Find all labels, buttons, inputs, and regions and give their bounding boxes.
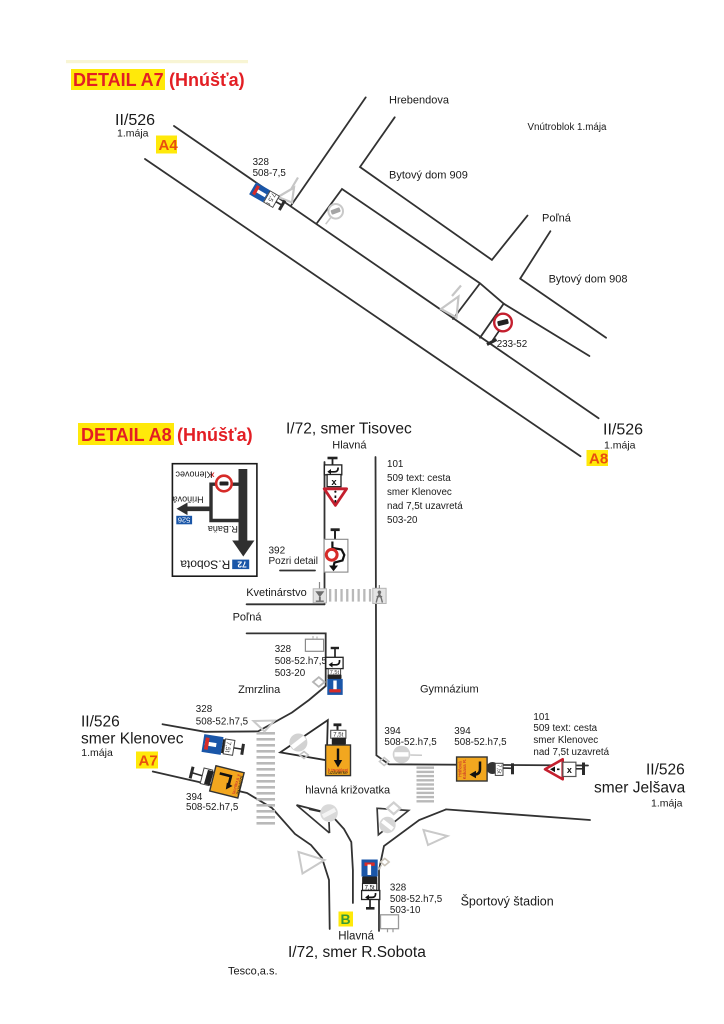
svg-text:Športový štadion: Športový štadion (461, 894, 554, 909)
svg-text:A8: A8 (589, 451, 608, 468)
svg-text:Poľná: Poľná (542, 213, 572, 225)
svg-text:Hriňová: Hriňová (173, 495, 204, 505)
svg-text:smer Klenovec: smer Klenovec (81, 731, 184, 748)
svg-text:394: 394 (384, 726, 401, 737)
svg-text:508-52.h7,5: 508-52.h7,5 (275, 656, 328, 667)
svg-text:328: 328 (196, 704, 213, 715)
svg-text:394: 394 (454, 726, 471, 737)
svg-text:Hlavná: Hlavná (332, 440, 367, 452)
svg-text:101: 101 (533, 712, 549, 723)
svg-text:508-52.h7,5: 508-52.h7,5 (196, 717, 249, 728)
svg-text:nad 7,5t uzavretá: nad 7,5t uzavretá (387, 501, 463, 512)
svg-text:503-20: 503-20 (275, 668, 306, 679)
svg-text:508-52.h7,5: 508-52.h7,5 (186, 802, 239, 813)
svg-text:Poľná: Poľná (233, 612, 263, 624)
svg-text:uzávierke: uzávierke (328, 770, 348, 775)
svg-text:B: B (341, 911, 351, 927)
svg-text:508-52.h7,5: 508-52.h7,5 (384, 737, 437, 748)
svg-text:392: 392 (269, 546, 286, 557)
svg-text:101: 101 (387, 459, 403, 470)
svg-text:R.Sobota: R.Sobota (180, 558, 230, 572)
svg-text:7,5t: 7,5t (496, 764, 502, 774)
svg-text:x: x (567, 765, 572, 775)
svg-text:Zmrzlina: Zmrzlina (238, 684, 281, 696)
svg-text:R.Baňa: R.Baňa (208, 524, 238, 534)
svg-text:smer Klenovec: smer Klenovec (387, 487, 452, 498)
svg-text:Vnútroblok 1.mája: Vnútroblok 1.mája (528, 122, 608, 133)
svg-text:I/72, smer Tisovec: I/72, smer Tisovec (286, 421, 412, 438)
svg-text:508-52.h7,5: 508-52.h7,5 (454, 737, 507, 748)
svg-text:1.mája: 1.mája (117, 128, 149, 140)
svg-text:233-52: 233-52 (497, 339, 528, 350)
svg-text:Bytový dom 909: Bytový dom 909 (389, 170, 468, 182)
svg-text:1.mája: 1.mája (651, 798, 683, 810)
svg-text:328: 328 (253, 157, 270, 168)
svg-text:72: 72 (237, 559, 247, 569)
svg-text:II/526: II/526 (646, 762, 685, 779)
svg-text:(Hnúšťa): (Hnúšťa) (169, 70, 245, 90)
svg-text:328: 328 (390, 883, 407, 894)
svg-text:Hrebendova: Hrebendova (389, 95, 450, 107)
svg-text:1.mája: 1.mája (604, 440, 636, 452)
svg-text:508-52.h7,5: 508-52.h7,5 (390, 894, 443, 905)
svg-text:1.mája: 1.mája (81, 747, 113, 759)
svg-text:Hlavná: Hlavná (338, 931, 374, 943)
svg-text:509 text: cesta: 509 text: cesta (533, 723, 597, 734)
svg-text:509 text: cesta: 509 text: cesta (387, 473, 451, 484)
svg-text:503-20: 503-20 (387, 515, 418, 526)
svg-text:526: 526 (178, 515, 191, 524)
svg-text:Bytový dom 908: Bytový dom 908 (549, 274, 628, 286)
svg-text:328: 328 (275, 644, 292, 655)
svg-text:x: x (331, 477, 337, 488)
svg-text:II/526: II/526 (115, 112, 155, 129)
svg-text:I/72, smer R.Sobota: I/72, smer R.Sobota (288, 944, 426, 961)
svg-text:Klenovec: Klenovec (175, 470, 213, 480)
svg-text:Kvetinárstvo: Kvetinárstvo (246, 587, 307, 599)
svg-text:503-10: 503-10 (390, 905, 421, 916)
svg-text:smer Jelšava: smer Jelšava (594, 780, 686, 797)
svg-text:DETAIL A7: DETAIL A7 (73, 70, 164, 90)
svg-text:A4: A4 (159, 137, 179, 154)
svg-text:smer Klenovec: smer Klenovec (533, 735, 598, 746)
svg-text:Tesco,a.s.: Tesco,a.s. (228, 966, 278, 978)
svg-text:508-7,5: 508-7,5 (253, 168, 287, 179)
svg-text:(Hnúšťa): (Hnúšťa) (177, 425, 253, 445)
svg-text:hlavná križovatka: hlavná križovatka (305, 785, 391, 797)
svg-text:II/526: II/526 (603, 422, 643, 439)
svg-text:II/526: II/526 (81, 714, 120, 731)
svg-text:nad 7,5t uzavretá: nad 7,5t uzavretá (533, 747, 609, 758)
svg-text:Gymnázium: Gymnázium (420, 684, 479, 696)
svg-text:DETAIL A8: DETAIL A8 (81, 425, 172, 445)
svg-text:Kokava R.: Kokava R. (462, 759, 467, 780)
svg-text:Pozri detail: Pozri detail (269, 556, 318, 567)
svg-text:A7: A7 (139, 753, 158, 770)
